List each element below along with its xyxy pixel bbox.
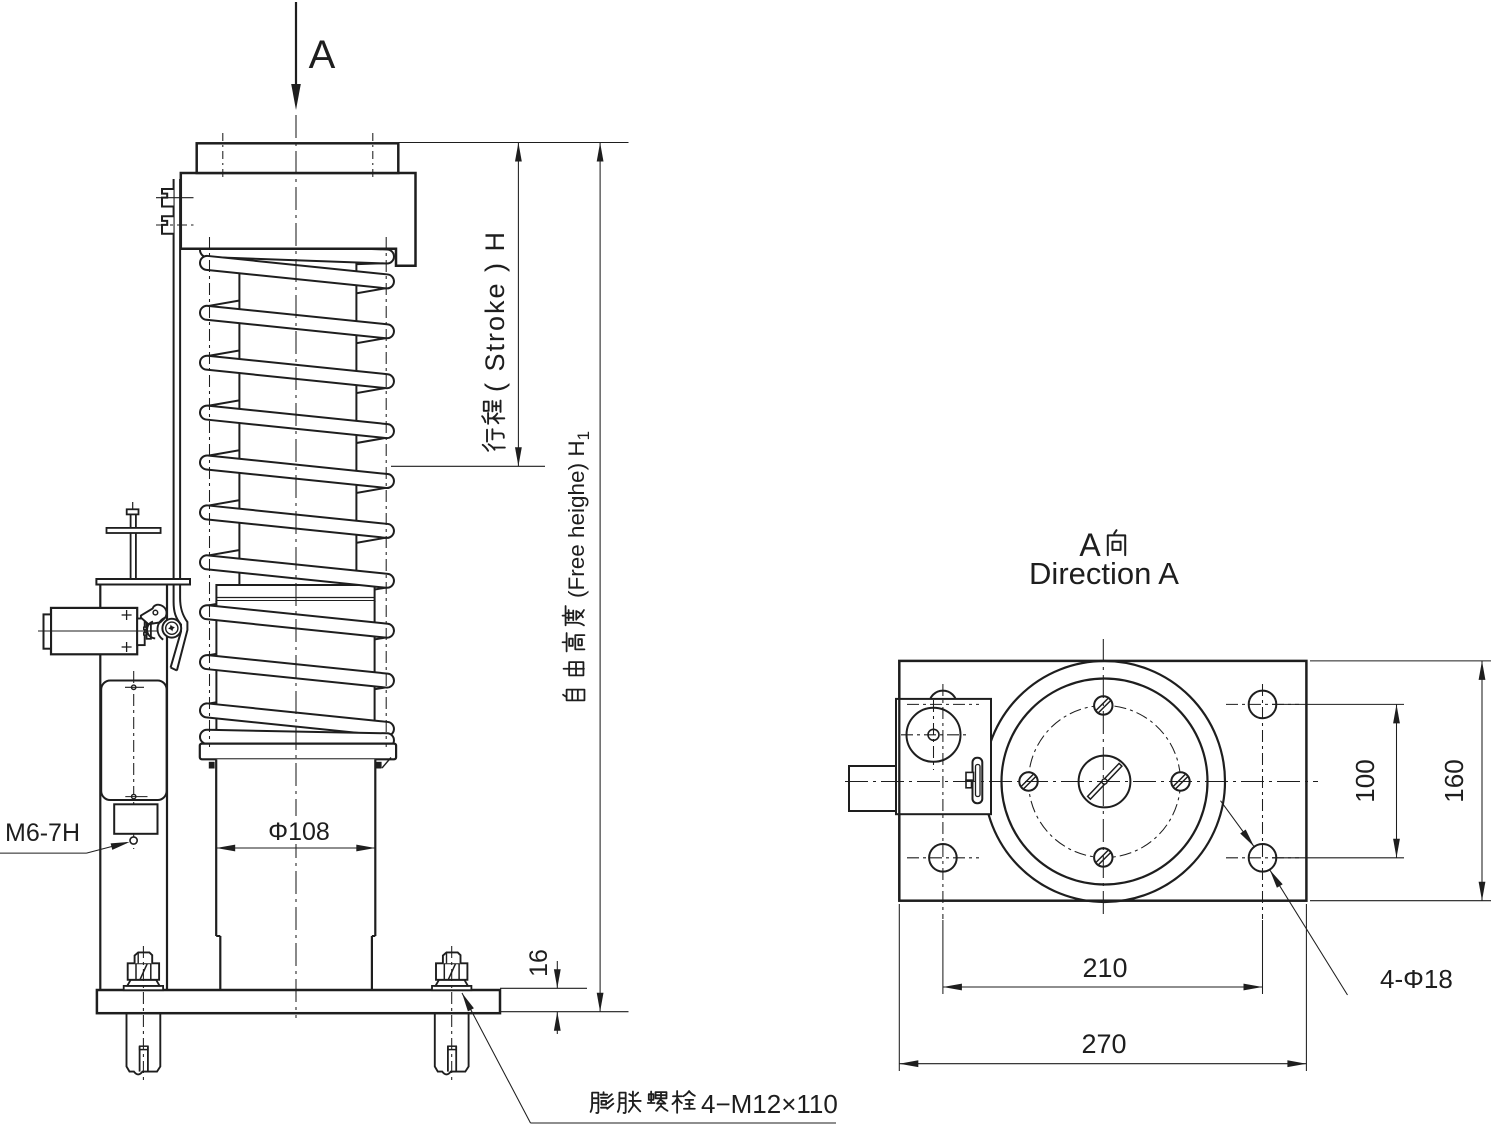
svg-text:M6-7H: M6-7H [5, 819, 80, 847]
svg-text:270: 270 [1081, 1029, 1126, 1059]
svg-text:210: 210 [1082, 953, 1127, 983]
svg-text:100: 100 [1350, 759, 1380, 802]
svg-text:Φ108: Φ108 [268, 818, 330, 846]
svg-text:( Stroke ) H: ( Stroke ) H [480, 230, 510, 392]
svg-text:Direction A: Direction A [1029, 556, 1179, 591]
svg-text:4−M12×110: 4−M12×110 [701, 1089, 838, 1119]
svg-text:4-Φ18: 4-Φ18 [1380, 964, 1453, 994]
svg-text:A: A [309, 33, 336, 77]
svg-text:(Free heighe) H1: (Free heighe) H1 [564, 431, 593, 598]
svg-text:160: 160 [1439, 759, 1469, 802]
svg-text:16: 16 [525, 949, 553, 977]
